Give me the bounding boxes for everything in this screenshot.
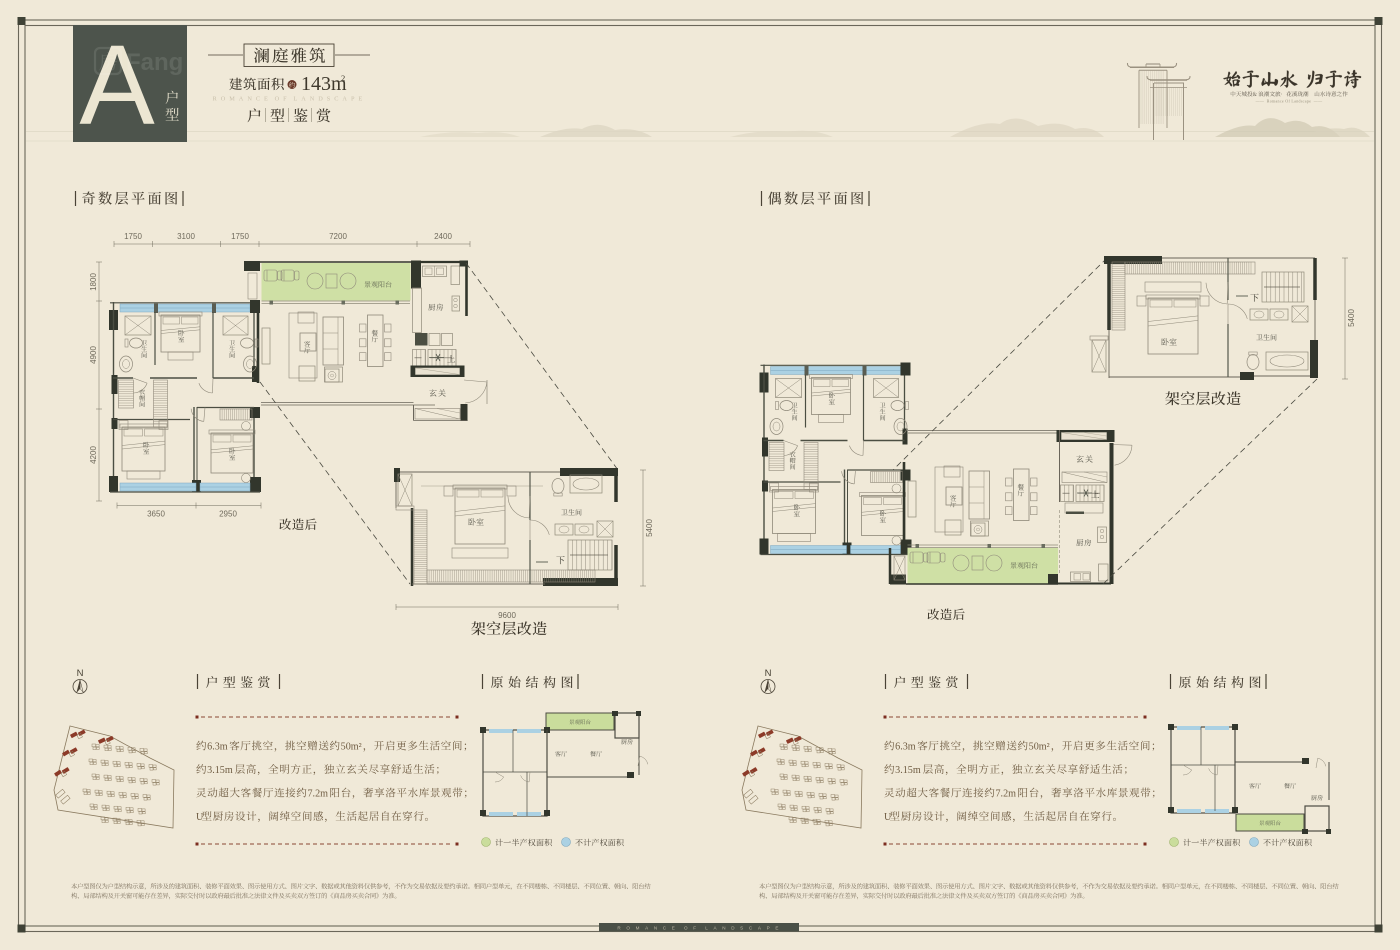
svg-text:50m²: 50m² — [1029, 742, 1050, 753]
svg-text:50m²: 50m² — [341, 742, 362, 753]
svg-text:4900: 4900 — [89, 346, 98, 364]
svg-text:U: U — [196, 812, 204, 823]
svg-text:3100: 3100 — [177, 232, 195, 241]
svg-text:N: N — [765, 668, 772, 679]
svg-text:Fang: Fang — [126, 49, 183, 76]
svg-text:6.3m: 6.3m — [207, 742, 228, 753]
svg-text:U: U — [884, 812, 892, 823]
svg-text:N: N — [77, 668, 84, 679]
svg-text:1750: 1750 — [231, 232, 249, 241]
svg-text:A: A — [79, 22, 155, 148]
svg-text:1800: 1800 — [89, 273, 98, 291]
svg-text:4200: 4200 — [89, 446, 98, 464]
svg-text:3.15m: 3.15m — [895, 765, 921, 776]
svg-text:1750: 1750 — [124, 232, 142, 241]
svg-text:9600: 9600 — [498, 611, 516, 620]
svg-text:7200: 7200 — [329, 232, 347, 241]
svg-text:5400: 5400 — [645, 519, 654, 537]
svg-text:2950: 2950 — [219, 510, 237, 519]
svg-text:7.2m: 7.2m — [996, 789, 1017, 800]
svg-text:—— Romance Of Landscape ——: —— Romance Of Landscape —— — [1255, 99, 1324, 104]
svg-text:7.2m: 7.2m — [308, 789, 329, 800]
svg-text:R O M A N C E O F L A N D S: R O M A N C E O F L A N D S C A P E — [617, 926, 780, 931]
svg-text:R O M A N C E O F L A N D S: R O M A N C E O F L A N D S C A P E — [213, 96, 364, 103]
svg-text:3650: 3650 — [147, 510, 165, 519]
svg-text:2400: 2400 — [434, 232, 452, 241]
svg-text:5400: 5400 — [1347, 309, 1356, 327]
svg-text:2: 2 — [341, 73, 345, 83]
svg-text:6.3m: 6.3m — [895, 742, 916, 753]
svg-text:3.15m: 3.15m — [207, 765, 233, 776]
